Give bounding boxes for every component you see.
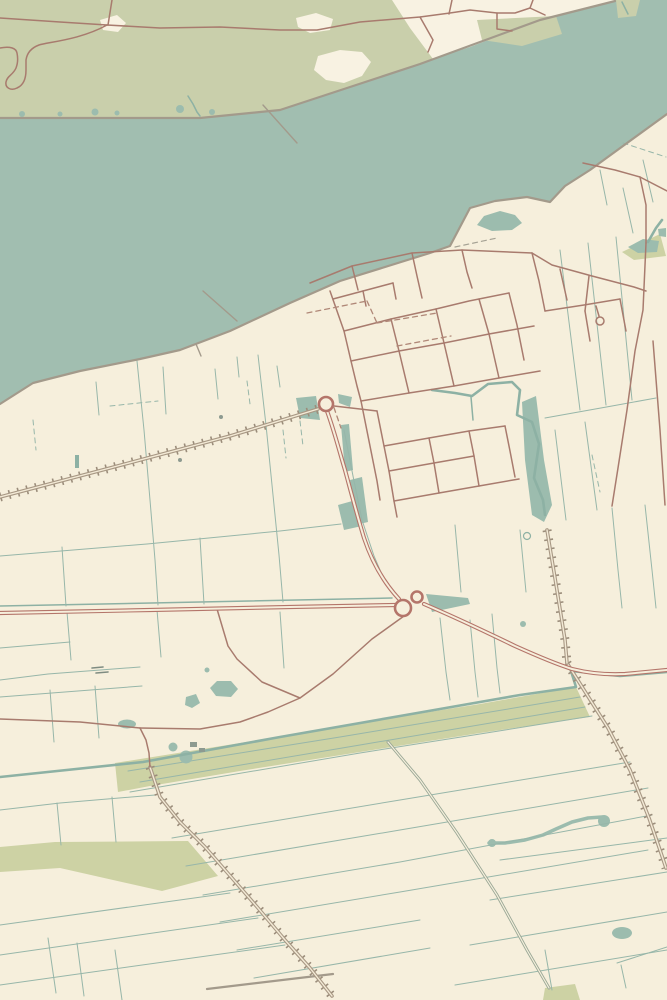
canal: [471, 397, 473, 420]
building: [190, 742, 197, 747]
ditch: [490, 872, 667, 900]
pond: [169, 743, 178, 752]
street: [545, 299, 620, 311]
ditch: [77, 943, 84, 996]
ditch: [600, 170, 607, 205]
field-mark: [96, 672, 108, 673]
rural-road: [653, 341, 665, 505]
ditch: [147, 524, 341, 544]
major-road: [0, 605, 396, 613]
street: [560, 269, 567, 300]
rock: [92, 109, 99, 116]
street: [412, 253, 422, 298]
ditch-dashed: [247, 381, 250, 404]
street: [505, 426, 515, 477]
street: [361, 371, 540, 401]
dike-road: [567, 663, 666, 868]
canal-bank: [338, 394, 352, 407]
pond: [658, 228, 666, 237]
track-dashed: [367, 301, 377, 323]
ditch: [157, 610, 161, 657]
ditch: [280, 612, 284, 668]
rock: [115, 111, 120, 116]
ditch: [237, 920, 420, 950]
ditch: [585, 422, 597, 510]
ditch-dashed: [592, 455, 600, 492]
street: [585, 311, 590, 341]
street: [334, 406, 377, 411]
ditch: [0, 667, 140, 680]
ditch: [115, 950, 122, 1000]
ditch: [67, 612, 71, 660]
street: [479, 299, 499, 378]
ditch: [112, 797, 116, 842]
street: [585, 276, 589, 311]
ditch: [220, 850, 648, 922]
street: [532, 253, 646, 291]
ditch: [237, 357, 239, 377]
track-dashed: [377, 313, 437, 323]
street: [363, 291, 366, 306]
building: [199, 748, 205, 752]
field-mark: [219, 415, 223, 419]
street: [509, 293, 524, 360]
ditch: [455, 950, 667, 985]
street: [462, 250, 472, 288]
roundabout: [319, 397, 333, 411]
ditch: [96, 382, 99, 415]
pier: [196, 344, 201, 356]
rock: [209, 109, 215, 115]
well-symbol: [524, 533, 531, 540]
pond: [520, 621, 526, 627]
ditch: [455, 525, 461, 592]
street: [351, 326, 534, 361]
ditch: [277, 366, 280, 387]
dike-road: [567, 663, 666, 868]
ditch: [623, 188, 633, 233]
street: [532, 253, 545, 311]
rock: [176, 105, 184, 113]
street: [429, 438, 439, 493]
ditch: [470, 912, 667, 945]
ditch-dashed: [110, 401, 158, 406]
street: [391, 319, 409, 393]
pond: [477, 211, 522, 231]
ditch: [492, 614, 500, 693]
ditch: [95, 686, 99, 738]
roundabout: [395, 600, 411, 616]
pond: [185, 694, 200, 708]
ditch: [470, 620, 478, 697]
pond: [205, 668, 210, 673]
shore-dashed: [455, 238, 497, 247]
ditch: [440, 618, 450, 700]
ditch: [258, 355, 283, 602]
ditch: [0, 893, 230, 925]
street: [361, 401, 380, 500]
ditch: [0, 642, 70, 648]
ditch: [57, 803, 61, 845]
ditch: [48, 938, 56, 993]
ditch: [560, 250, 580, 410]
field-mark: [92, 667, 103, 668]
ditch: [617, 947, 667, 963]
street: [469, 431, 479, 486]
major-road: [424, 604, 667, 674]
street: [436, 309, 454, 386]
ditch: [621, 965, 626, 988]
ditch: [254, 948, 430, 978]
ditch-dashed: [33, 420, 36, 450]
ditch: [50, 690, 54, 742]
green-strip: [0, 841, 218, 891]
map-canvas[interactable]: [0, 0, 667, 1000]
major-road: [424, 604, 667, 674]
street: [384, 426, 505, 446]
pond-channel: [489, 817, 602, 843]
rock: [19, 111, 25, 117]
street: [394, 479, 519, 501]
ditch: [555, 430, 566, 520]
ditch: [0, 795, 155, 810]
field-mark: [75, 455, 79, 468]
ditch: [62, 547, 66, 606]
ditch: [203, 815, 652, 895]
ditch: [163, 367, 166, 414]
ditch: [0, 544, 147, 556]
rural-road: [640, 177, 646, 243]
field-mark: [178, 458, 182, 462]
ditch-dashed: [300, 421, 303, 446]
ditch-dashed: [623, 143, 666, 157]
rural-road: [140, 616, 404, 729]
ditch: [186, 788, 648, 866]
rock: [58, 112, 63, 117]
ditch: [0, 945, 285, 985]
lane: [207, 974, 333, 989]
street: [596, 306, 599, 316]
pond: [612, 927, 632, 939]
street: [344, 293, 509, 331]
ditch: [612, 508, 622, 608]
ditch-dashed: [283, 430, 286, 458]
ditch: [545, 398, 656, 418]
street: [389, 456, 474, 471]
ditch: [200, 538, 204, 604]
street: [393, 283, 396, 299]
ditch: [645, 505, 656, 608]
dike-road: [567, 663, 666, 868]
roundabout: [412, 592, 423, 603]
ditch: [137, 361, 158, 605]
cul-de-sac: [596, 317, 604, 325]
pond: [210, 681, 238, 697]
ditch: [215, 369, 218, 399]
ditch: [0, 686, 142, 697]
field-line: [140, 707, 585, 782]
map-view: [0, 0, 667, 1000]
ditch: [0, 918, 258, 955]
